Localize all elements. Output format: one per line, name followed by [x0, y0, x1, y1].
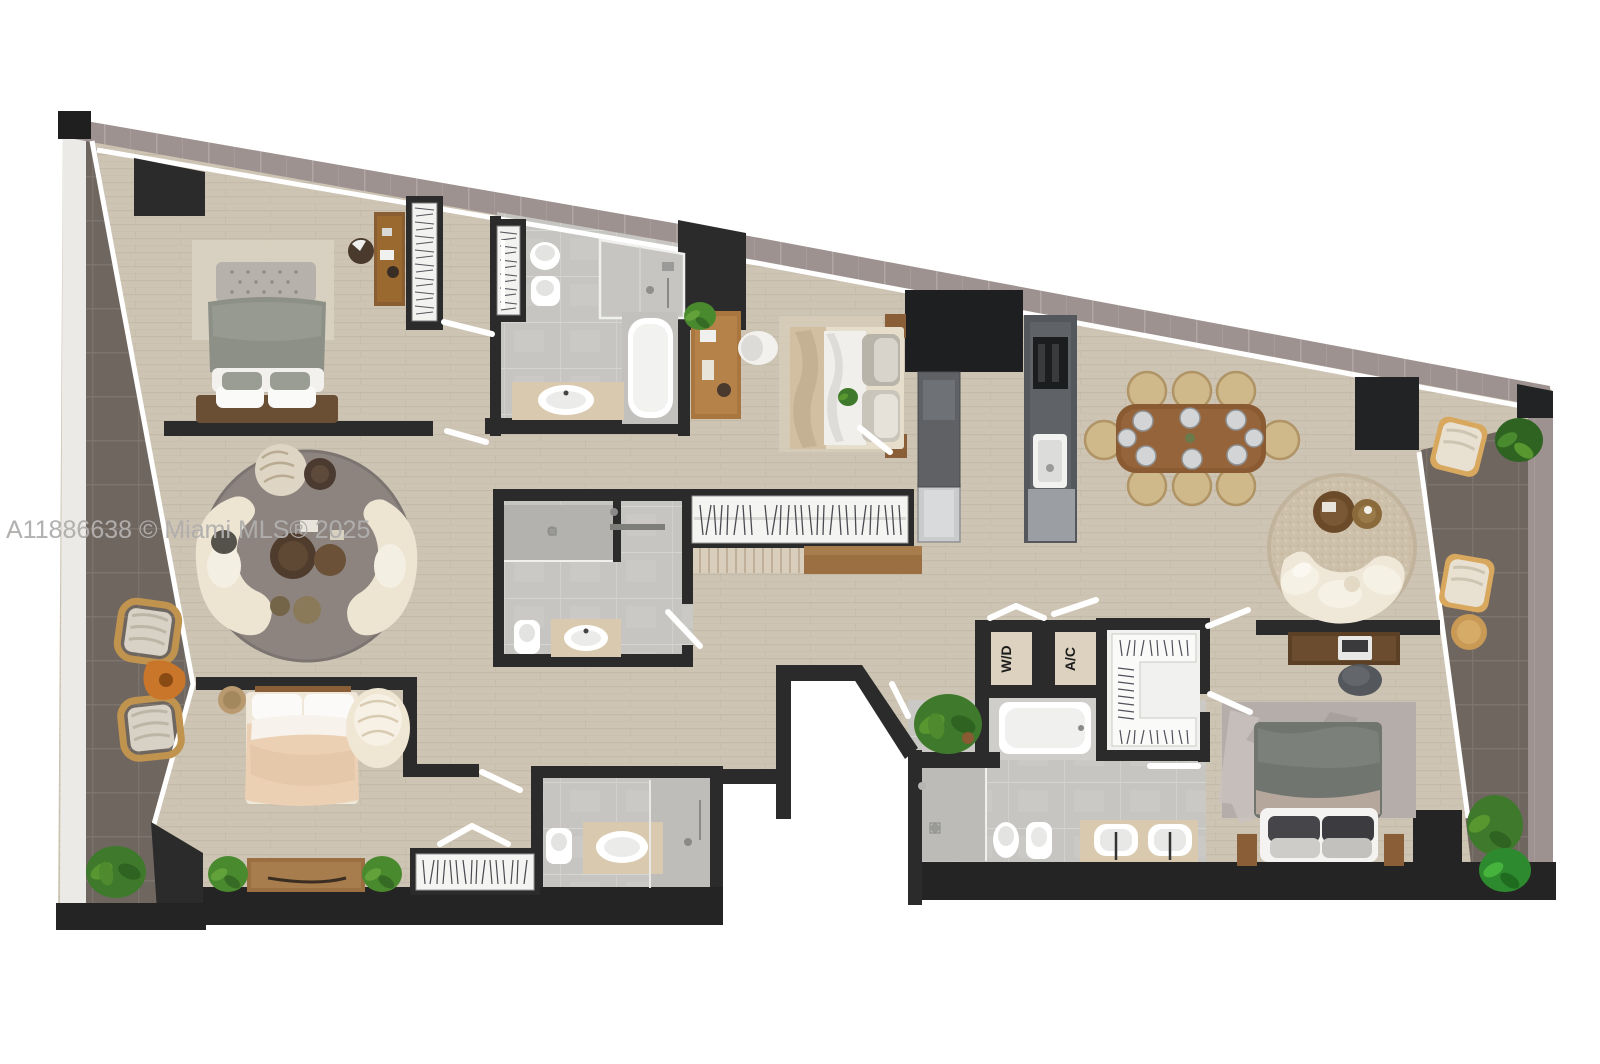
svg-text:A/C: A/C — [1062, 647, 1078, 671]
svg-text:W/D: W/D — [998, 645, 1014, 672]
svg-text:A11886638 © Miami MLS® 2025: A11886638 © Miami MLS® 2025 — [6, 516, 370, 544]
